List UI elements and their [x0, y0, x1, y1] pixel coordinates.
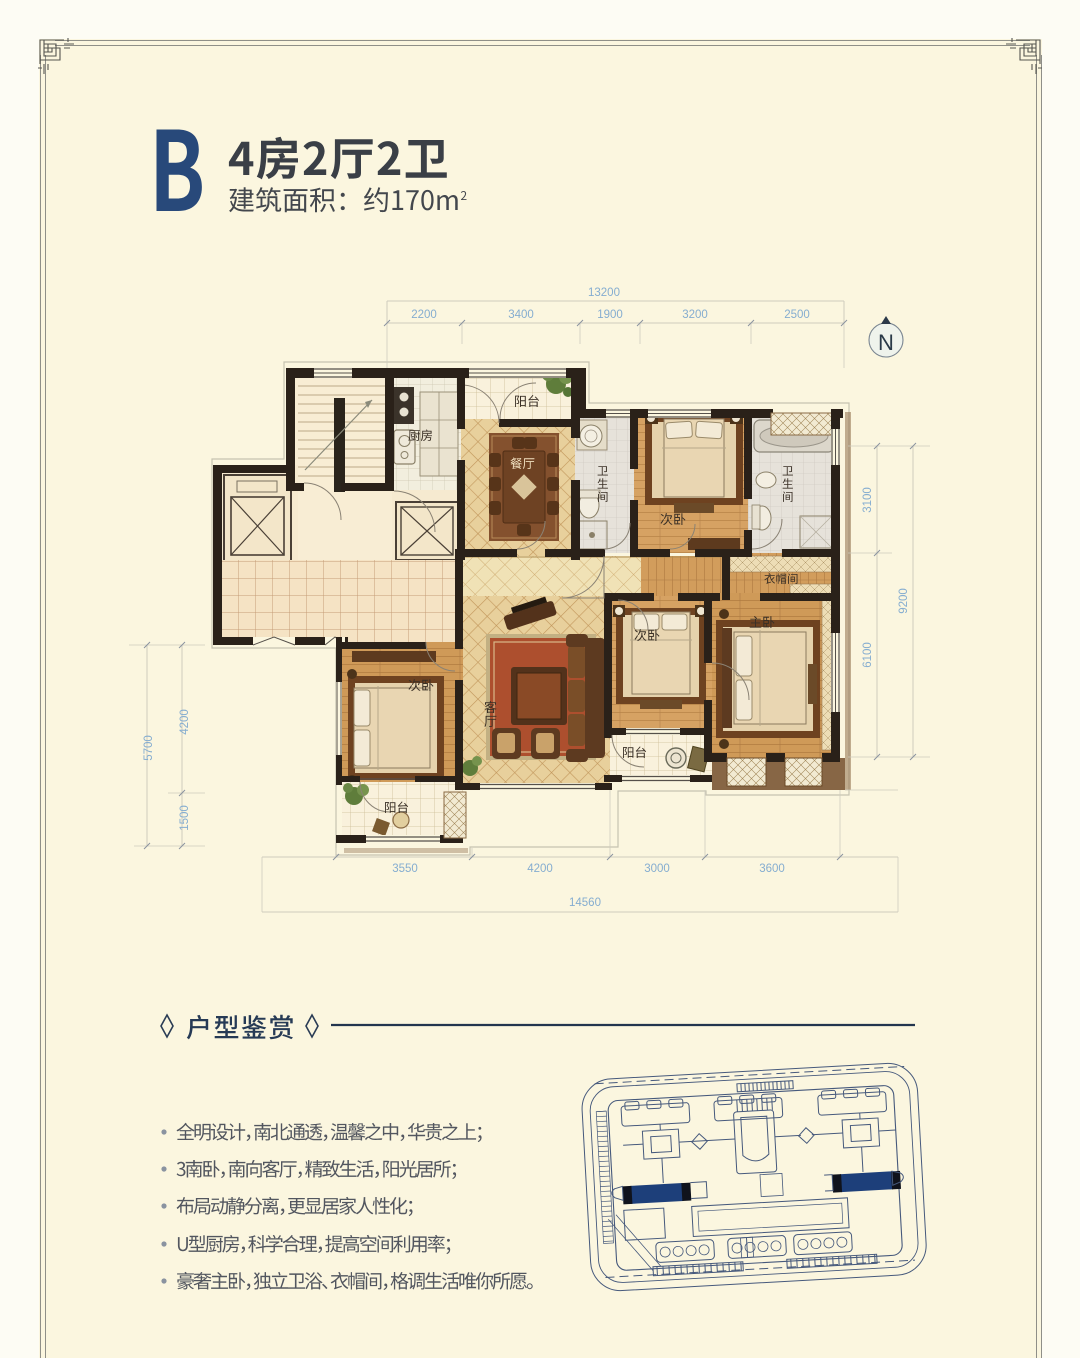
svg-text:2200: 2200: [411, 309, 437, 321]
svg-text:3550: 3550: [392, 863, 418, 875]
svg-text:N: N: [878, 330, 894, 355]
svg-text:3000: 3000: [644, 863, 670, 875]
svg-text:4200: 4200: [179, 709, 191, 735]
svg-text:9200: 9200: [898, 588, 910, 614]
svg-text:3400: 3400: [508, 309, 534, 321]
svg-text:2500: 2500: [784, 309, 810, 321]
svg-text:5700: 5700: [143, 735, 155, 761]
svg-text:3100: 3100: [862, 487, 874, 513]
svg-text:1900: 1900: [597, 309, 623, 321]
svg-text:6100: 6100: [862, 642, 874, 668]
svg-text:3200: 3200: [682, 309, 708, 321]
svg-text:3600: 3600: [759, 863, 785, 875]
svg-text:1500: 1500: [179, 805, 191, 831]
svg-text:4200: 4200: [527, 863, 553, 875]
svg-text:14560: 14560: [569, 897, 601, 909]
svg-text:13200: 13200: [588, 287, 620, 299]
